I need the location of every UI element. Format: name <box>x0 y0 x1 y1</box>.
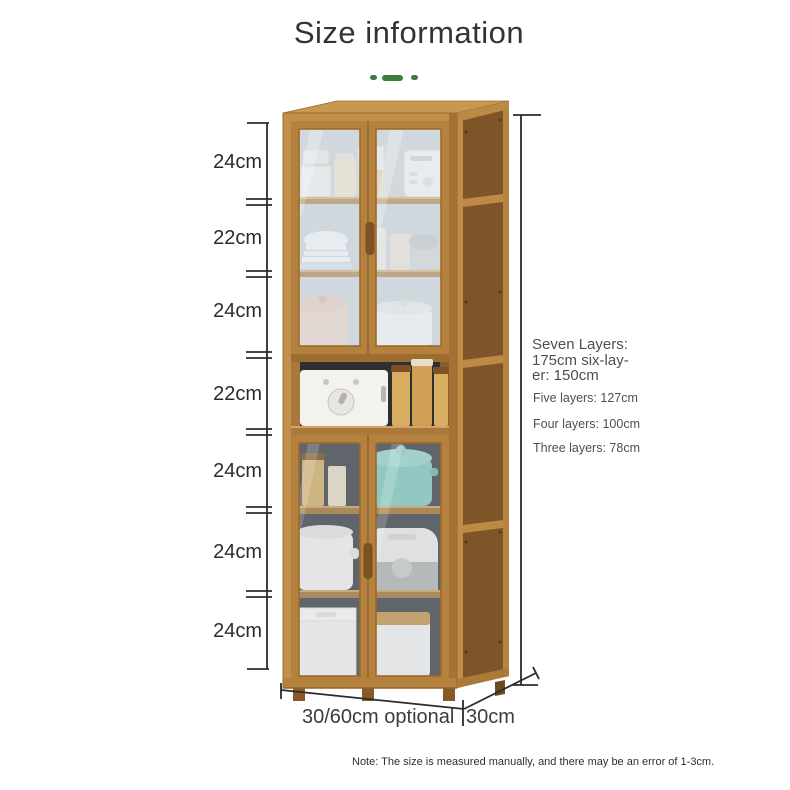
size-information-page: Size information <box>0 0 790 790</box>
cabinet-leg <box>293 688 305 701</box>
cabinet-diagram <box>0 0 790 790</box>
width-dimension-label: 30/60cm optional <box>302 706 454 729</box>
cabinet-leg <box>443 688 455 701</box>
dimension-label: 24cm <box>213 460 262 483</box>
dimension-label: 22cm <box>213 383 262 406</box>
cabinet-side-panel <box>457 101 509 688</box>
height-option-five-layers: Five layers: 127cm <box>533 391 638 405</box>
cabinet-illustration <box>283 101 509 701</box>
depth-dimension-label: 30cm <box>466 706 515 729</box>
height-summary-line: 175cm six-lay- <box>532 353 652 369</box>
height-summary-line: Seven Layers: <box>532 337 652 353</box>
dimension-label: 22cm <box>213 227 262 250</box>
dimension-label: 24cm <box>213 541 262 564</box>
storage-jars <box>391 359 449 426</box>
upper-door-handle <box>366 222 375 255</box>
measurement-note: Note: The size is measured manually, and… <box>352 755 720 769</box>
height-summary: Seven Layers: 175cm six-lay- er: 150cm <box>532 337 652 384</box>
dimension-label: 24cm <box>213 620 262 643</box>
open-shelf-section <box>291 354 449 435</box>
dimension-label: 24cm <box>213 300 262 323</box>
lower-door-handle <box>364 543 373 579</box>
height-summary-line: er: 150cm <box>532 368 652 384</box>
height-option-three-layers: Three layers: 78cm <box>533 441 640 455</box>
height-option-four-layers: Four layers: 100cm <box>533 417 640 431</box>
dimension-label: 24cm <box>213 151 262 174</box>
